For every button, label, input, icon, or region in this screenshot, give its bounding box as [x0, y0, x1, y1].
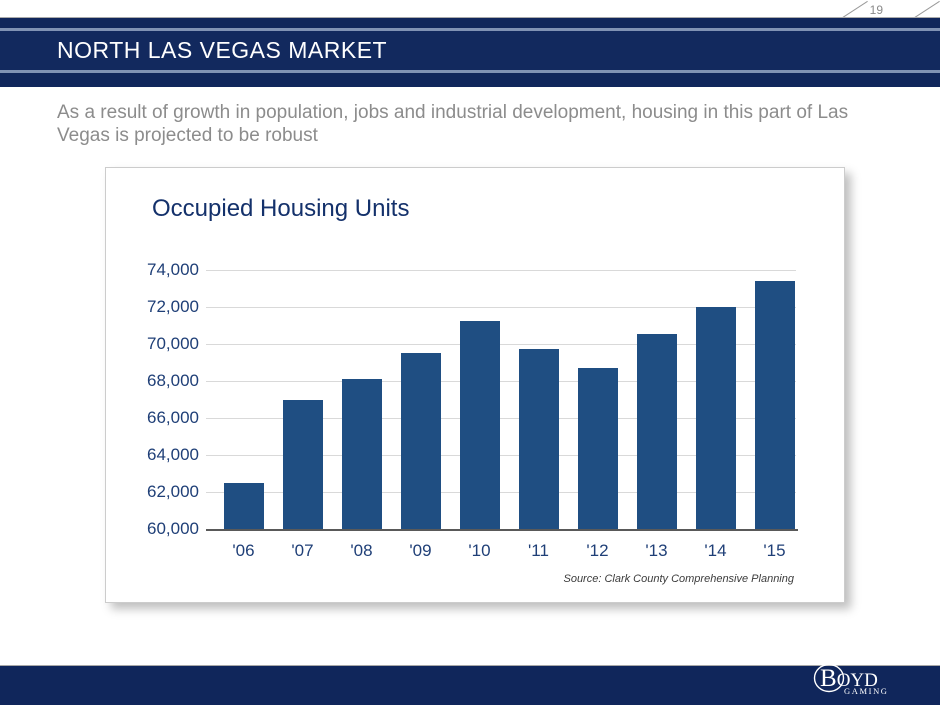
x-axis-tick-label: '10 — [450, 541, 509, 561]
source-note: Source: Clark County Comprehensive Plann… — [563, 573, 794, 585]
y-axis-tick-label: 74,000 — [106, 260, 199, 280]
bar-yr08 — [342, 379, 382, 529]
boyd-gaming-logo-icon: BOYD GAMING — [813, 660, 907, 698]
decorative-slash-icon — [842, 1, 868, 18]
x-axis-tick-label: '12 — [568, 541, 627, 561]
x-axis-tick-label: '15 — [745, 541, 804, 561]
header-band-bottom-strip — [0, 73, 940, 87]
y-axis-tick-label: 60,000 — [106, 519, 199, 539]
x-axis-tick-label: '09 — [391, 541, 450, 561]
page-number: 19 — [870, 3, 883, 17]
header-band-top-strip — [0, 18, 940, 28]
y-axis-tick-label: 68,000 — [106, 371, 199, 391]
decorative-slash-icon — [914, 1, 940, 18]
x-axis-tick-label: '07 — [273, 541, 332, 561]
bar-yr09 — [401, 353, 441, 529]
bar-yr10 — [460, 321, 500, 529]
bar-yr13 — [637, 334, 677, 529]
y-axis-tick-label: 72,000 — [106, 297, 199, 317]
top-strip: 19 — [0, 0, 940, 17]
x-axis-tick-label: '13 — [627, 541, 686, 561]
bar-yr14 — [696, 307, 736, 529]
gridline — [206, 270, 796, 271]
bar-yr12 — [578, 368, 618, 529]
logo-letter-b: B — [820, 665, 837, 692]
chart-card: Occupied Housing Units 60,00062,00064,00… — [105, 167, 845, 603]
bar-yr07 — [283, 400, 323, 530]
footer-band: BOYD GAMING — [0, 665, 940, 705]
y-axis-tick-label: 64,000 — [106, 445, 199, 465]
bar-yr15 — [755, 281, 795, 529]
y-axis-tick-label: 70,000 — [106, 334, 199, 354]
bar-yr06 — [224, 483, 264, 529]
bar-chart: 60,00062,00064,00066,00068,00070,00072,0… — [106, 168, 846, 604]
x-axis-line — [206, 529, 798, 531]
header-band: NORTH LAS VEGAS MARKET — [0, 17, 940, 87]
slide-subtitle: As a result of growth in population, job… — [57, 101, 872, 147]
x-axis-tick-label: '11 — [509, 541, 568, 561]
y-axis-tick-label: 62,000 — [106, 482, 199, 502]
bar-yr11 — [519, 349, 559, 529]
boyd-gaming-logo: BOYD GAMING — [813, 660, 907, 703]
x-axis-tick-label: '06 — [214, 541, 273, 561]
slide-title: NORTH LAS VEGAS MARKET — [57, 37, 387, 64]
header-title-band: NORTH LAS VEGAS MARKET — [0, 31, 940, 70]
y-axis-tick-label: 66,000 — [106, 408, 199, 428]
x-axis-tick-label: '08 — [332, 541, 391, 561]
presentation-slide: 19 NORTH LAS VEGAS MARKET As a result of… — [0, 0, 940, 705]
x-axis-tick-label: '14 — [686, 541, 745, 561]
logo-gaming-text: GAMING — [844, 686, 889, 696]
